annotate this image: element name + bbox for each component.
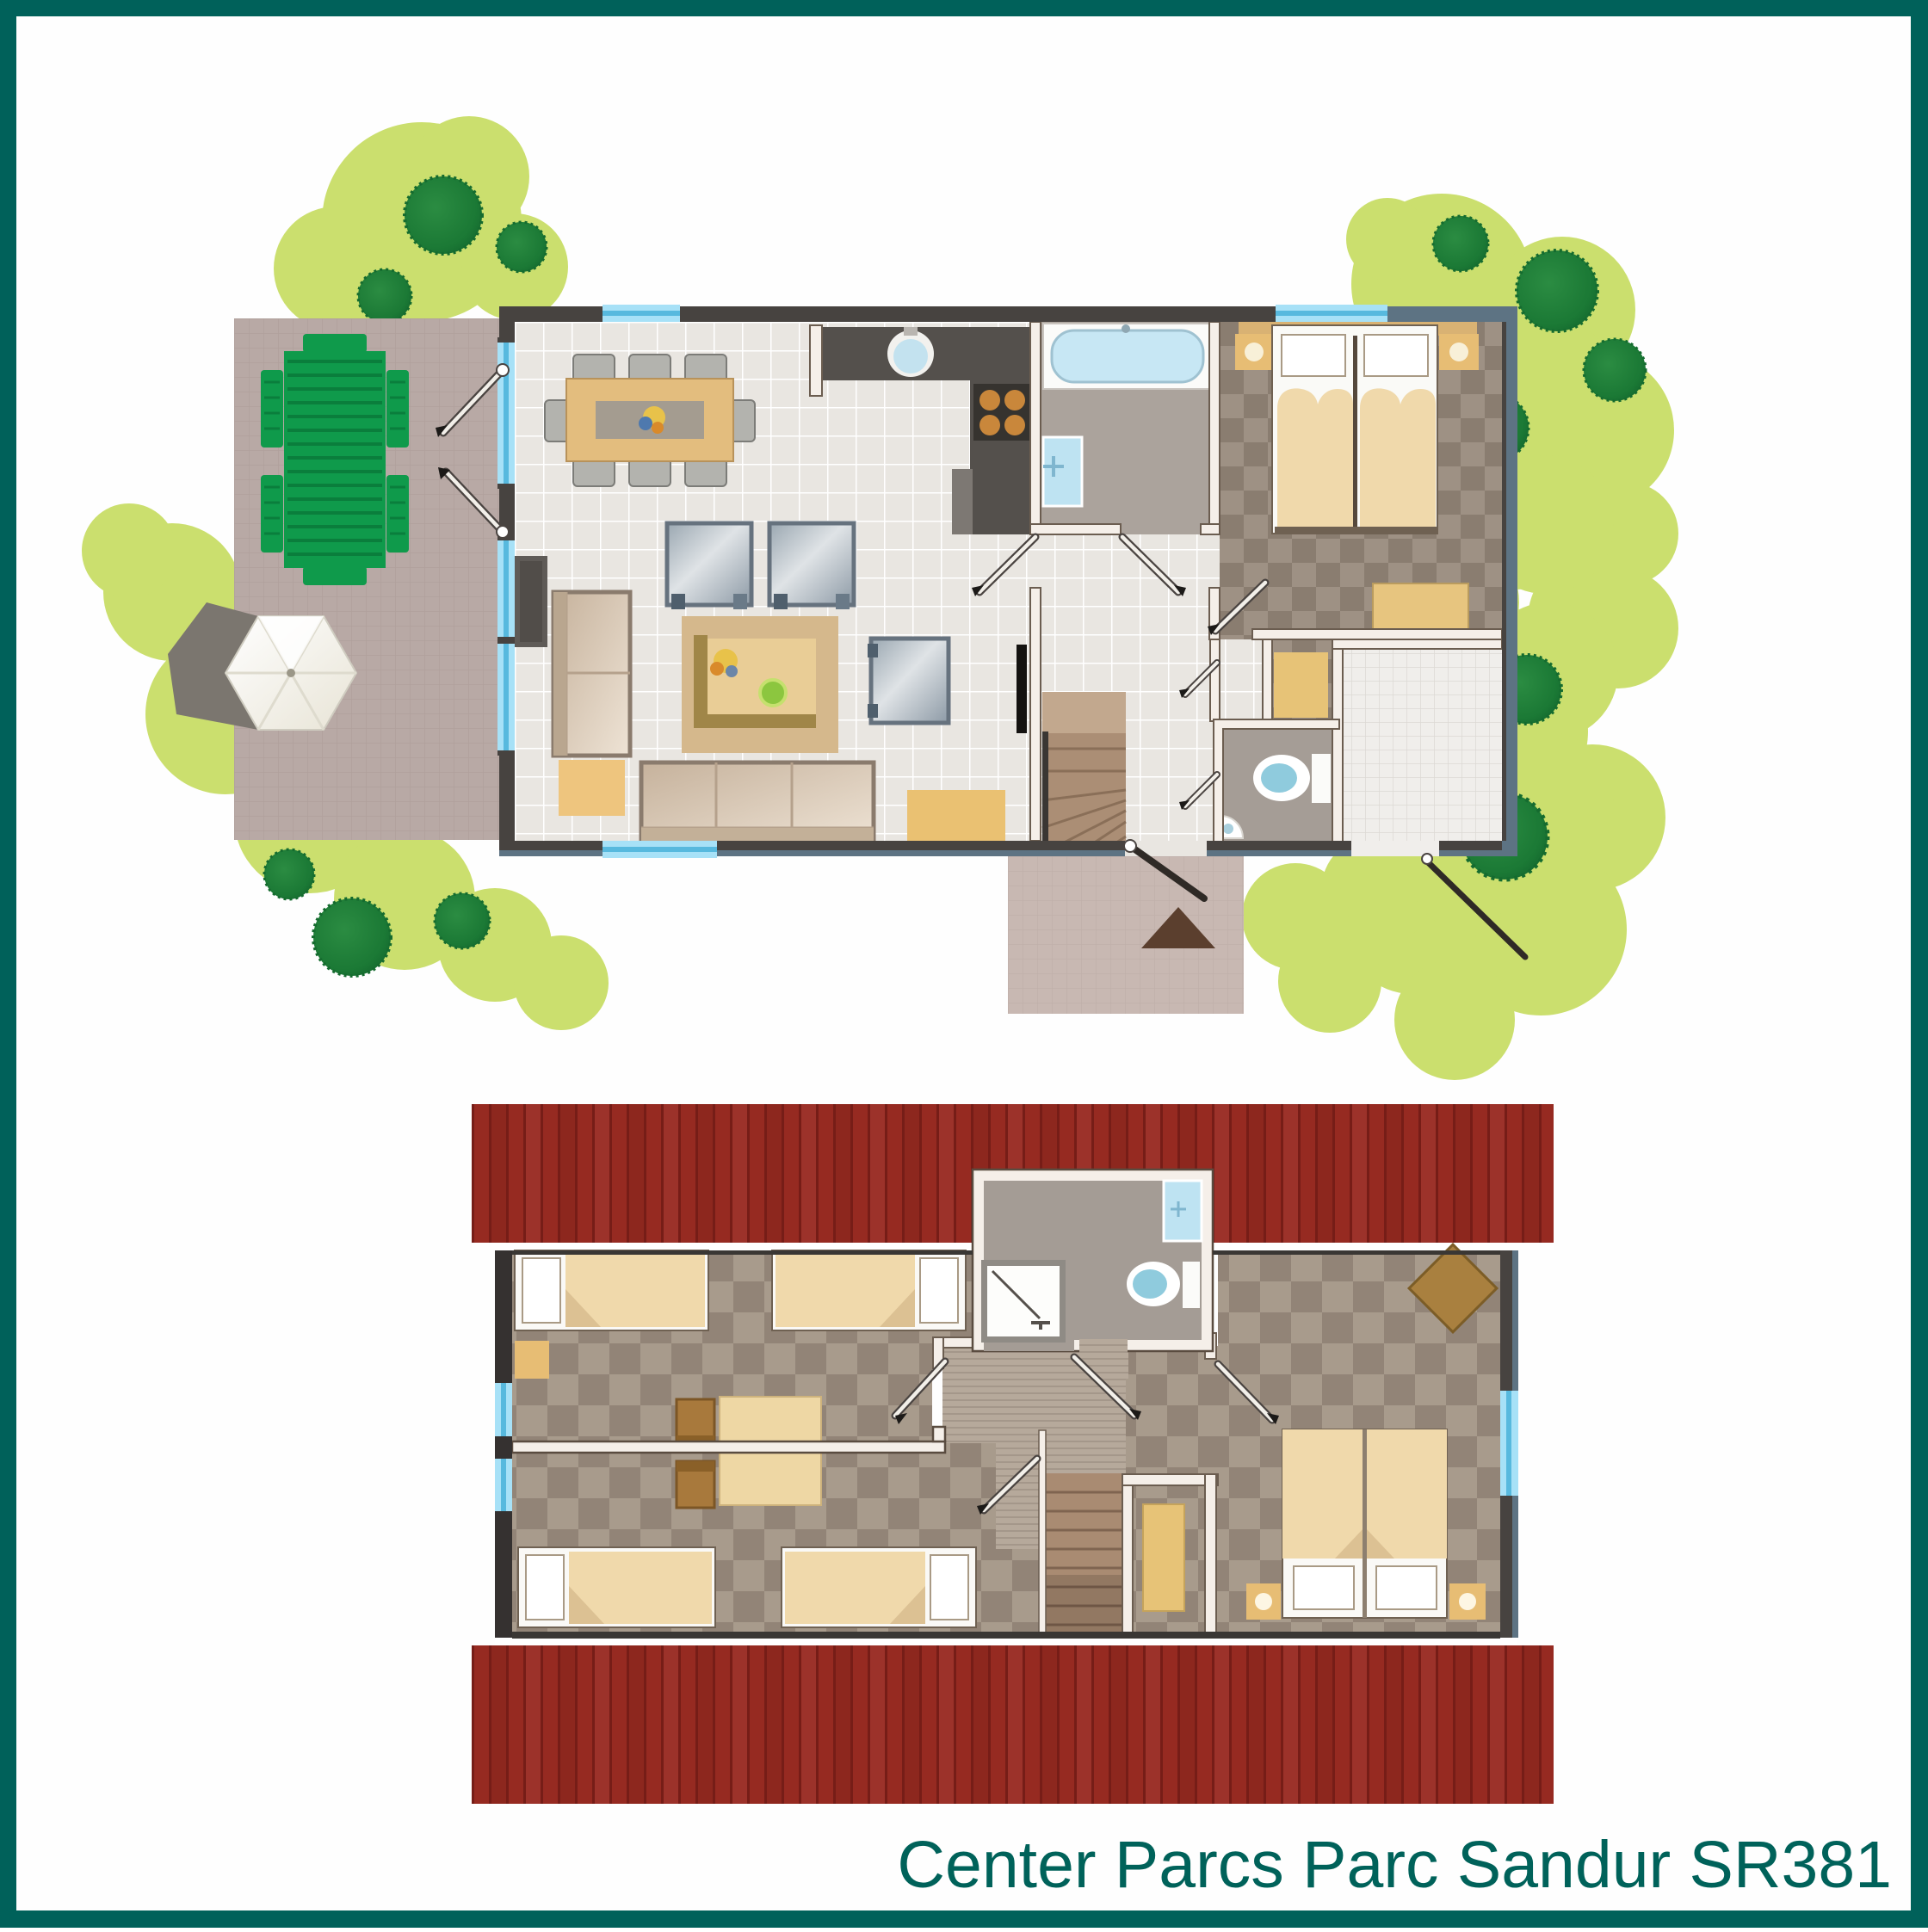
svg-text:Center Parcs Parc Sandur SR381: Center Parcs Parc Sandur SR381 bbox=[897, 1828, 1892, 1902]
